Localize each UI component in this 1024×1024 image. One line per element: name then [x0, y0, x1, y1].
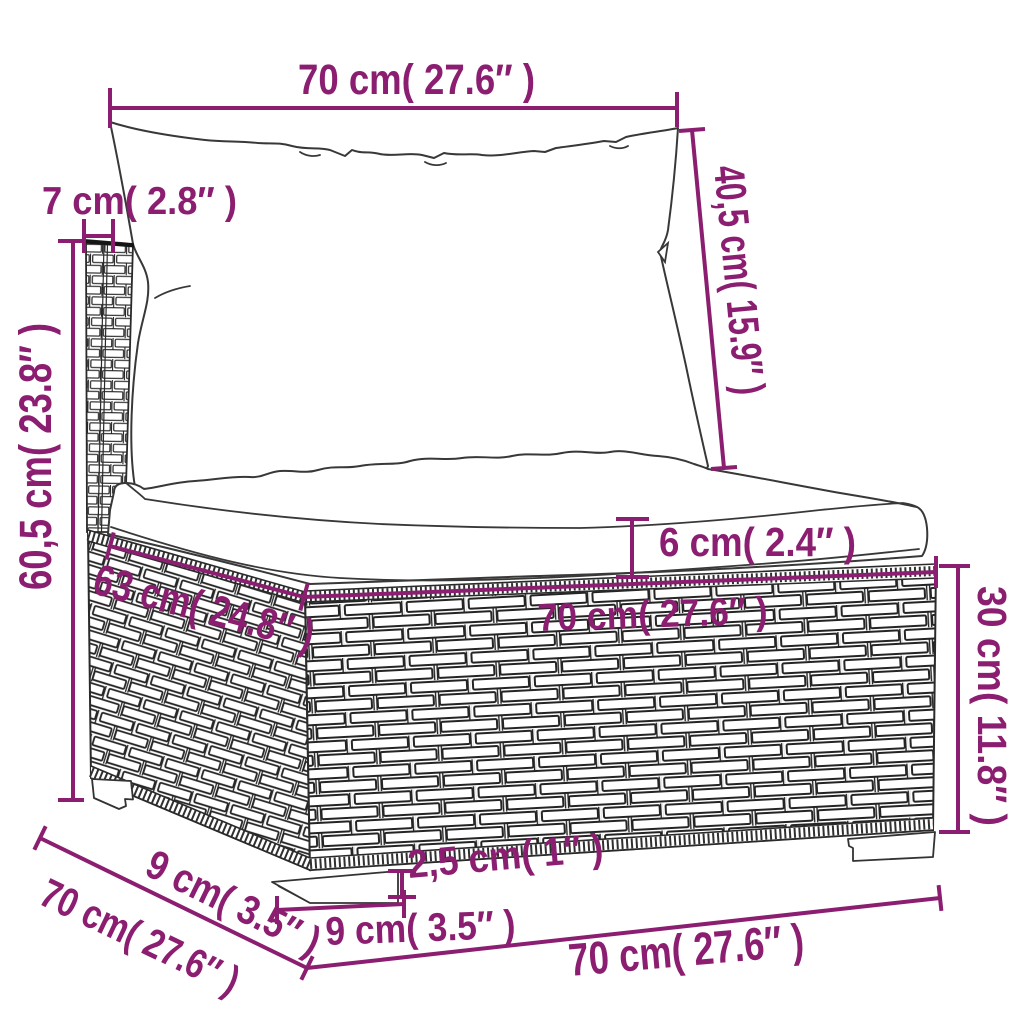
- svg-text:7 cm( 2.8″ ): 7 cm( 2.8″ ): [42, 180, 237, 223]
- svg-text:70 cm( 27.6″ ): 70 cm( 27.6″ ): [298, 56, 535, 104]
- svg-text:9 cm( 3.5″ ): 9 cm( 3.5″ ): [325, 903, 517, 954]
- svg-text:6 cm( 2.4″ ): 6 cm( 2.4″ ): [659, 519, 856, 565]
- svg-text:60,5 cm( 23.8″ ): 60,5 cm( 23.8″ ): [10, 323, 61, 590]
- svg-text:70 cm( 27.6″ ): 70 cm( 27.6″ ): [537, 590, 768, 640]
- svg-text:30 cm( 11.8″ ): 30 cm( 11.8″ ): [969, 586, 1015, 826]
